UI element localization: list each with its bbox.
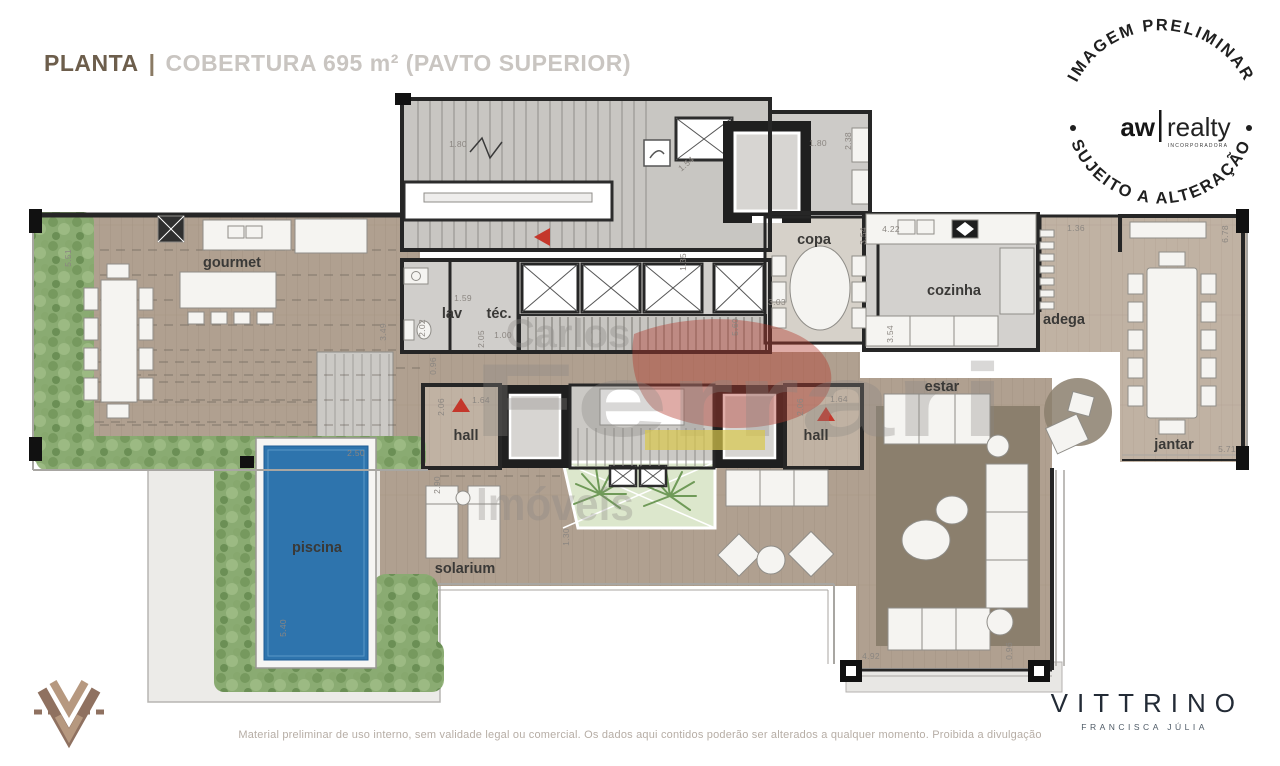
dimension-label-17: 1.00 <box>494 330 512 340</box>
dimension-label-29: 0.96 <box>1004 642 1014 660</box>
room-label-tec: téc. <box>487 306 512 322</box>
dimension-label-15: 2.02 <box>417 319 427 337</box>
dimension-label-19: 3.49 <box>378 323 388 341</box>
preliminary-badge: IMAGEM PRELIMINAR SUJEITO A ALTERAÇÃO aw… <box>1046 6 1276 236</box>
dimension-label-4: 2.38 <box>843 132 853 150</box>
room-label-piscina: piscina <box>292 540 343 556</box>
dimension-label-18: 0.96 <box>428 357 438 375</box>
vittrino-brand-sub: FRANCISCA JÚLIA <box>1042 722 1244 732</box>
dimension-label-21: 1.64 <box>472 395 490 405</box>
room-label-cozinha: cozinha <box>927 283 982 299</box>
room-label-solarium: solarium <box>435 561 495 577</box>
watermark-line3: Imóveis <box>476 478 634 530</box>
badge-brand-right: realty <box>1167 112 1231 142</box>
page: Carlos Ferrari Imóveis gourmetlavtéc.cop… <box>0 0 1280 766</box>
elevator-top <box>723 121 811 223</box>
dimension-label-1: 1.80 <box>449 139 467 149</box>
dimension-label-9: 3.54 <box>858 227 868 245</box>
dimension-label-16: 2.05 <box>476 330 486 348</box>
room-label-adega: adega <box>1043 312 1086 328</box>
dimension-label-27: 5.40 <box>278 619 288 637</box>
dimension-label-0: 5.51 <box>63 249 73 267</box>
room-label-lav: lav <box>442 306 462 322</box>
title-secondary: COBERTURA 695 m² (PAVTO SUPERIOR) <box>166 50 631 77</box>
room-label-estar: estar <box>925 379 960 395</box>
dimension-label-24: 2.90 <box>432 476 442 494</box>
watermark-highlight <box>645 430 765 450</box>
title-primary: PLANTA <box>44 50 139 77</box>
title-separator: | <box>149 50 156 77</box>
room-label-hall-right: hall <box>804 428 829 444</box>
dimension-label-3: 1.80 <box>809 138 827 148</box>
dimension-label-25: 1.30 <box>561 528 571 546</box>
dimension-label-14: 1.59 <box>454 293 472 303</box>
badge-dot-right <box>1246 125 1252 131</box>
dimension-label-6: 3.03 <box>768 297 786 307</box>
v-monogram-icon <box>22 660 117 755</box>
dimension-label-10: 3.54 <box>885 325 895 343</box>
badge-brand-divider <box>1159 110 1162 142</box>
page-title: PLANTA | COBERTURA 695 m² (PAVTO SUPERIO… <box>44 50 631 77</box>
badge-brand-sub: INCORPORADORA <box>1168 143 1228 149</box>
dimension-label-8: 4.22 <box>882 224 900 234</box>
room-label-jantar: jantar <box>1153 437 1194 453</box>
dimension-label-20: 2.06 <box>436 398 446 416</box>
vittrino-logo: VITTRINO FRANCISCA JÚLIA <box>1042 688 1244 732</box>
room-label-gourmet: gourmet <box>203 255 261 271</box>
room-label-copa: copa <box>797 232 832 248</box>
dimension-label-7: 5.60 <box>730 318 740 336</box>
dimension-label-26: 2.50 <box>347 448 365 458</box>
adega-furniture <box>1040 230 1054 309</box>
dimension-label-13: 5.71 <box>1218 444 1236 454</box>
vittrino-brand: VITTRINO <box>1042 688 1244 719</box>
badge-dot-left <box>1070 125 1076 131</box>
dimension-label-5: 1.35 <box>678 253 688 271</box>
dimension-label-23: 1.64 <box>830 394 848 404</box>
badge-arc-top: IMAGEM PRELIMINAR <box>1064 16 1257 85</box>
copa-furniture <box>772 246 866 330</box>
badge-brand-left: aw <box>1120 112 1155 142</box>
dimension-label-28: 4.92 <box>862 651 880 661</box>
room-label-hall-left: hall <box>454 428 479 444</box>
dimension-label-22: 2.06 <box>795 398 805 416</box>
